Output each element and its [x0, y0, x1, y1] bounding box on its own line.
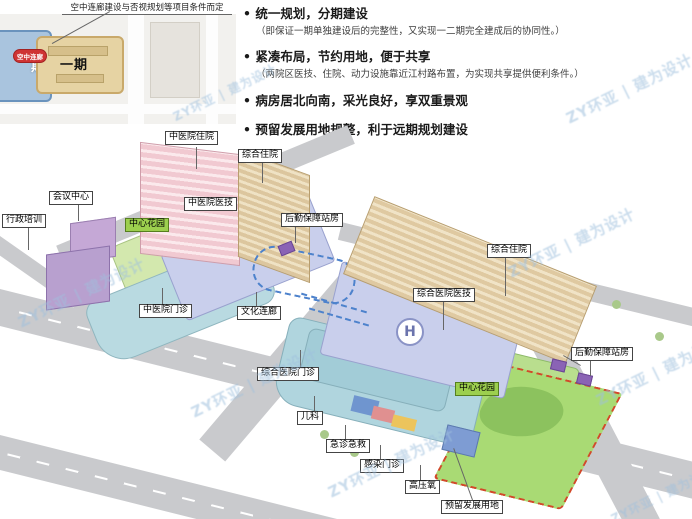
key-point-title: 紧凑布局，节约用地，便于共享 — [243, 49, 689, 66]
leader-line — [78, 205, 79, 221]
label-admin-training: 行政培训 — [2, 214, 46, 228]
leader-line — [256, 292, 257, 306]
watermark: ZY环亚 | 建为设计 — [504, 203, 638, 283]
leader-line — [443, 298, 444, 330]
label-hyperbaric-oxygen: 高压氧 — [405, 480, 440, 494]
leader-line — [262, 163, 263, 183]
minimap-phase1-label: 一期 — [60, 54, 88, 73]
label-central-garden-left: 中心花园 — [125, 218, 169, 232]
leader-line — [590, 360, 591, 376]
leader-line — [420, 465, 421, 480]
minimap-callout-note: 空中连廊建设与否视规划等项目条件而定 — [62, 1, 232, 15]
key-point-note: （即保证一期单独建设后的完整性，又实现一二期完全建成后的协同性。） — [256, 26, 689, 39]
leader-line — [345, 425, 346, 439]
label-general-inpatient-left: 综合住院 — [238, 149, 282, 163]
label-tcm-inpatient: 中医院住院 — [165, 131, 218, 145]
minimap-building — [56, 74, 104, 83]
air-corridor-badge: 空中连廊 — [13, 49, 47, 63]
leader-line — [196, 147, 197, 169]
tree-icon — [612, 300, 621, 309]
watermark: ZY环亚 | 建为设计 — [592, 331, 692, 411]
minimap-parcel — [150, 22, 200, 98]
leader-line — [28, 228, 29, 250]
label-reserved-land: 预留发展用地 — [441, 500, 503, 514]
label-logistics-right: 后勤保障站房 — [571, 347, 633, 361]
label-culture-corridor: 文化连廊 — [237, 306, 281, 320]
leader-line — [162, 288, 163, 304]
label-pediatrics: 儿科 — [297, 411, 323, 425]
label-emergency: 急诊急救 — [326, 439, 370, 453]
minimap-phase1-parcel: 一期 — [36, 36, 124, 94]
label-central-garden-right: 中心花园 — [455, 382, 499, 396]
leader-line — [314, 396, 315, 411]
tree-icon — [655, 332, 664, 341]
label-general-medtech: 综合医院医技 — [413, 288, 475, 302]
label-tcm-outpatient: 中医院门诊 — [139, 304, 192, 318]
label-tcm-medtech: 中医院医技 — [184, 197, 237, 211]
helipad-letter: H — [404, 324, 416, 340]
label-logistics-left: 后勤保障站房 — [281, 213, 343, 227]
label-conference-center: 会议中心 — [49, 191, 93, 205]
helipad-icon: H — [396, 318, 424, 346]
key-point-title: 预留发展用地规整，利于远期规划建设 — [243, 122, 689, 139]
leader-line — [295, 225, 296, 243]
tree-icon — [320, 430, 329, 439]
key-point-title: 统一规划，分期建设 — [243, 6, 689, 23]
slide: 期 一期 空中连廊 空中连廊建设与否视规划等项目条件而定 统一规划，分期建设 （… — [0, 0, 692, 519]
key-points-list: 统一规划，分期建设 （即保证一期单独建设后的完整性，又实现一二期完全建成后的协同… — [243, 6, 689, 139]
